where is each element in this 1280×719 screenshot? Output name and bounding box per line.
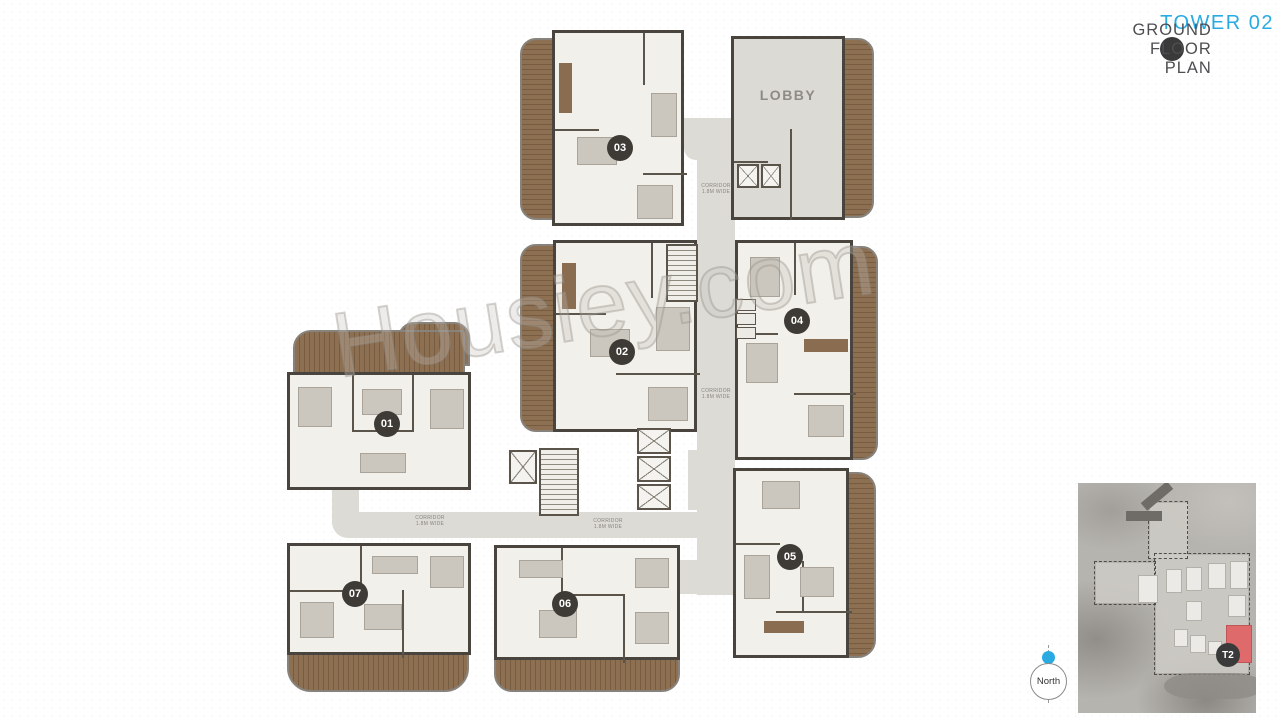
unit-badge-03: 03: [607, 135, 633, 161]
bed: [635, 558, 669, 588]
compass: North: [1028, 645, 1070, 705]
sitemap-building: [1186, 567, 1202, 591]
utility-room: [736, 327, 756, 339]
bed: [635, 612, 669, 644]
elevator-shaft: [737, 164, 759, 188]
corridor-label: CORRIDOR 1.8M WIDE: [700, 388, 732, 400]
kitchen-counter: [562, 263, 576, 309]
sitemap-building: [1138, 575, 1158, 603]
sofa: [519, 560, 563, 578]
corridor-widening: [688, 450, 735, 510]
sitemap: T2: [1078, 483, 1256, 713]
sofa: [360, 453, 406, 473]
sofa: [372, 556, 418, 574]
interior-wall: [643, 33, 645, 85]
interior-wall: [555, 129, 599, 131]
sitemap-boundary: [1148, 501, 1188, 559]
sofa: [744, 555, 770, 599]
bed: [762, 481, 800, 509]
unit-badge-07: 07: [342, 581, 368, 607]
kitchen-counter: [559, 63, 572, 113]
interior-wall: [623, 594, 625, 663]
bed: [808, 405, 844, 437]
sitemap-building: [1186, 601, 1202, 621]
bed: [430, 389, 464, 429]
sofa: [651, 93, 677, 137]
page-subtitle: GROUND FLOOR PLAN: [1160, 37, 1184, 61]
interior-wall: [556, 313, 606, 315]
interior-wall: [651, 243, 653, 298]
kitchen-counter: [764, 621, 804, 633]
staircase: [539, 448, 579, 516]
sofa: [750, 257, 780, 297]
corridor-lobby-stub: [684, 118, 733, 160]
tower-badge: T2: [1216, 643, 1240, 667]
floor-plan-page: TOWER 02 GROUND FLOOR PLAN CORRIDOR 1.8M…: [0, 0, 1280, 719]
corridor-dim-text: 1.8M WIDE: [404, 521, 456, 527]
unit-badge-05: 05: [777, 544, 803, 570]
unit-badge-01: 01: [374, 411, 400, 437]
interior-wall: [412, 375, 414, 430]
lobby-label: LOBBY: [734, 87, 842, 103]
interior-wall: [734, 161, 768, 163]
wood-deck: [293, 330, 465, 376]
interior-wall: [794, 243, 796, 295]
bed: [300, 602, 334, 638]
sitemap-building: [1174, 629, 1188, 647]
sitemap-building: [1230, 561, 1248, 589]
sofa: [656, 307, 690, 351]
interior-wall: [794, 393, 856, 395]
corridor-label: CORRIDOR 1.8M WIDE: [585, 518, 631, 530]
sitemap-building: [1228, 595, 1246, 617]
utility-room: [736, 313, 756, 325]
interior-wall: [776, 611, 852, 613]
dining-table: [800, 567, 834, 597]
unit-badge-04: 04: [784, 308, 810, 334]
corridor-label: CORRIDOR 1.8M WIDE: [404, 515, 456, 527]
elevator-shaft: [637, 428, 671, 454]
interior-wall: [352, 375, 354, 430]
dining-table: [364, 604, 402, 630]
interior-wall: [643, 173, 687, 175]
corridor-main: [332, 512, 700, 538]
kitchen-counter: [804, 339, 848, 352]
elevator-shaft: [761, 164, 781, 188]
interior-wall: [790, 129, 792, 220]
bed: [430, 556, 464, 588]
wood-deck: [840, 38, 874, 218]
sitemap-trees: [1164, 673, 1256, 699]
staircase: [666, 244, 698, 302]
unit-badge-06: 06: [552, 591, 578, 617]
elevator-shaft: [509, 450, 537, 484]
compass-label: North: [1030, 663, 1067, 700]
elevator-shaft: [637, 484, 671, 510]
lobby: LOBBY: [731, 36, 845, 220]
interior-wall: [402, 590, 404, 658]
elevator-shaft: [637, 456, 671, 482]
utility-room: [736, 299, 756, 311]
corridor-label: CORRIDOR 1.8M WIDE: [700, 183, 732, 195]
sitemap-road: [1126, 511, 1162, 521]
header: TOWER 02 GROUND FLOOR PLAN: [1160, 12, 1274, 35]
corridor-dim-text: 1.8M WIDE: [700, 394, 732, 400]
interior-wall: [736, 543, 780, 545]
bed: [746, 343, 778, 383]
unit-03: [552, 30, 684, 226]
interior-wall: [616, 373, 700, 375]
corridor-dim-text: 1.8M WIDE: [585, 524, 631, 530]
unit-badge-02: 02: [609, 339, 635, 365]
unit-06: [494, 545, 680, 660]
sitemap-building: [1190, 635, 1206, 653]
bed: [648, 387, 688, 421]
sitemap-building: [1208, 563, 1226, 589]
bed: [298, 387, 332, 427]
bed: [637, 185, 673, 219]
corridor-dim-text: 1.8M WIDE: [700, 189, 732, 195]
unit-07: [287, 543, 471, 655]
sitemap-building: [1166, 569, 1182, 593]
unit-04: [735, 240, 853, 460]
